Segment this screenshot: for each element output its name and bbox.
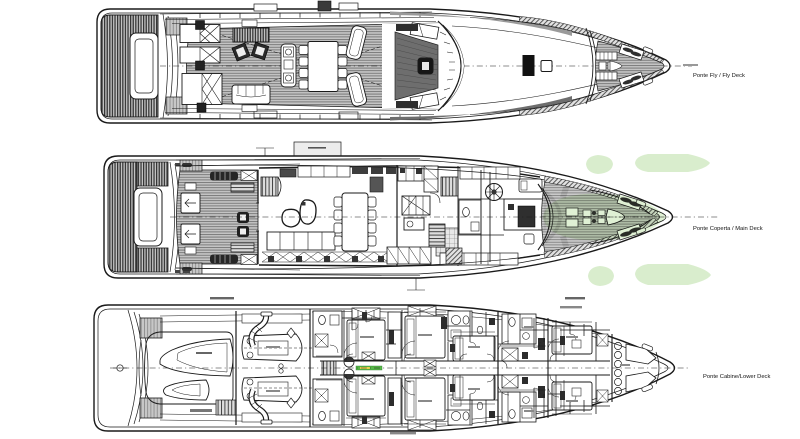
svg-text:Ponte Cabine/Lower Deck: Ponte Cabine/Lower Deck: [703, 374, 770, 380]
svg-text:Ponte Coperta / Main Deck: Ponte Coperta / Main Deck: [693, 226, 763, 232]
svg-text:Ponte Fly / Fly Deck: Ponte Fly / Fly Deck: [693, 73, 745, 79]
